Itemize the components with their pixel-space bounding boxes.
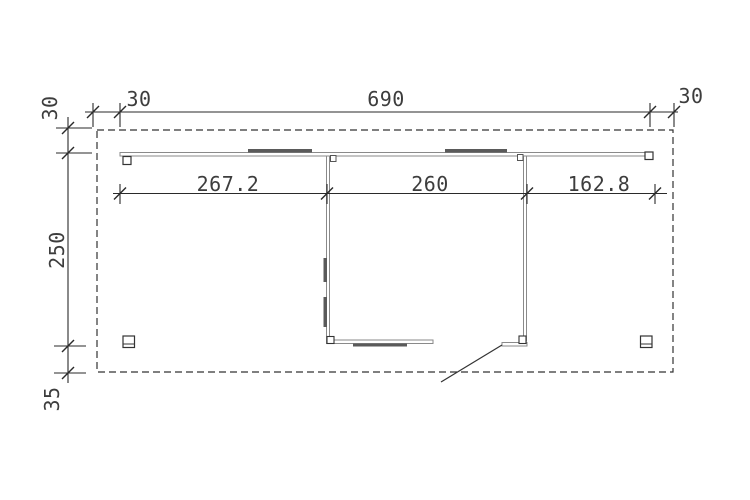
dim-label-left-bay: 267.2 [197,174,260,194]
floor-plan-canvas: 30 690 30 267.2 260 162.8 30 250 35 [0,0,750,500]
roof-panel-right [445,149,507,153]
left-wall-panel-upper [324,258,328,282]
post-left [123,336,135,348]
door-swing-line [441,345,502,382]
dim-label-side-bottom-overhang: 35 [42,386,62,411]
post-right [641,336,653,348]
left-wall-panel-lower [324,297,328,327]
floor-plan-drawing [0,0,750,500]
front-wall-corner-cap-left [327,337,334,344]
dim-label-top-right-overhang: 30 [678,86,703,106]
front-wall-corner-cap-right [519,336,526,344]
front-wall-left-segment [327,340,434,344]
beam-end-cap-left [123,157,131,165]
front-wall-panel [353,344,407,347]
left-wall-top-notch [331,156,337,162]
dim-label-room-width: 260 [411,174,449,194]
roof-panel-left [248,149,312,153]
beam-end-cap-right [645,152,653,160]
dim-label-side-top-overhang: 30 [40,95,60,120]
dim-label-total-width: 690 [367,89,405,109]
right-wall [524,156,527,341]
rear-beam [120,149,653,165]
dim-label-depth: 250 [47,231,67,269]
rear-beam-line [120,153,653,157]
right-wall-top-notch [518,155,524,161]
roof-outline-dashed [97,130,673,372]
dim-label-top-left-overhang: 30 [126,89,151,109]
dim-label-right-bay: 162.8 [568,174,631,194]
